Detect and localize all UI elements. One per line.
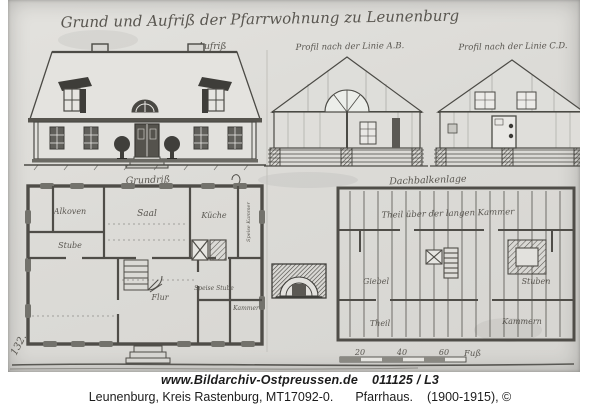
section-door — [492, 116, 516, 148]
room-label-alkoven: Alkoven — [53, 207, 86, 216]
attic-plan-label: Dachbalkenlage — [388, 174, 467, 188]
room-label-speise-kammer: Speise Kammer — [246, 201, 252, 241]
attic-note: Theil über der langen Kammer — [381, 207, 515, 220]
section-dark-niche — [392, 118, 400, 148]
elevation-drawing: Aufriß — [24, 42, 266, 170]
attic-plan-drawing: Dachbalkenlage — [338, 174, 574, 340]
scale-bar: 20 40 60 Fuß — [340, 348, 481, 362]
room-label-saal: Saal — [137, 209, 157, 219]
scale-tick-60: 60 — [439, 348, 449, 357]
attic-chimney-right — [508, 240, 546, 274]
archive-page: Grund und Aufriß der Pfarrwohnung zu Leu… — [0, 0, 600, 409]
room-label-kammer: Kammer — [232, 305, 260, 312]
section-cd-drawing: Profil nach der Linie C.D. — [430, 41, 580, 166]
section-cd-label: Profil nach der Linie C.D. — [457, 41, 567, 53]
room-label-speise-stube: Speise Stube — [194, 285, 234, 292]
caption-image-id: 011125 / L3 — [372, 373, 439, 387]
caption-website: www.Bildarchiv-Ostpreussen.de — [161, 373, 358, 387]
area-label-theil: Theil — [370, 319, 391, 328]
sheet-base-line — [12, 364, 574, 365]
room-label-flur: Flur — [150, 293, 169, 302]
room-label-stube: Stube — [58, 241, 82, 250]
sheet-base-line-2 — [10, 368, 418, 369]
area-label-kammern: Kammern — [501, 317, 542, 326]
caption-location: Leunenburg, Kreis Rastenburg, MT17092-0. — [89, 390, 334, 404]
staircase — [124, 260, 162, 292]
scale-tick-20: 20 — [354, 348, 365, 357]
oven-detail — [272, 264, 326, 298]
section-ab-drawing: Profil nach der Linie A.B. — [264, 41, 428, 166]
caption-subject: Pfarrhaus. — [355, 390, 413, 404]
caption-source-line: www.Bildarchiv-Ostpreussen.de011125 / L3 — [0, 373, 600, 387]
room-label-kueche: Küche — [200, 211, 227, 220]
entrance-door — [135, 124, 159, 157]
architectural-drawing: Grund und Aufriß der Pfarrwohnung zu Leu… — [8, 0, 580, 372]
plan-entrance-steps — [126, 346, 170, 363]
caption-description-line: Leunenburg, Kreis Rastenburg, MT17092-0.… — [0, 390, 600, 404]
plinth — [32, 159, 258, 163]
archive-photograph: Grund und Aufriß der Pfarrwohnung zu Leu… — [8, 0, 580, 372]
small-vent — [448, 124, 457, 133]
area-label-giebel: Giebel — [363, 277, 390, 286]
margin-number: 132. — [9, 333, 29, 358]
drawing-title: Grund und Aufriß der Pfarrwohnung zu Leu… — [60, 7, 459, 32]
area-label-stuben: Stuben — [522, 277, 551, 286]
caption-date-copyright: (1900-1915), © — [427, 390, 511, 404]
section-mark-squiggle — [232, 175, 240, 184]
plan-dashed-lines — [32, 224, 194, 316]
section-ab-label: Profil nach der Linie A.B. — [294, 41, 404, 53]
scale-tick-40: 40 — [396, 348, 407, 357]
ground-plan-drawing: Grundriß — [25, 174, 265, 363]
attic-chimney-left — [426, 248, 458, 278]
